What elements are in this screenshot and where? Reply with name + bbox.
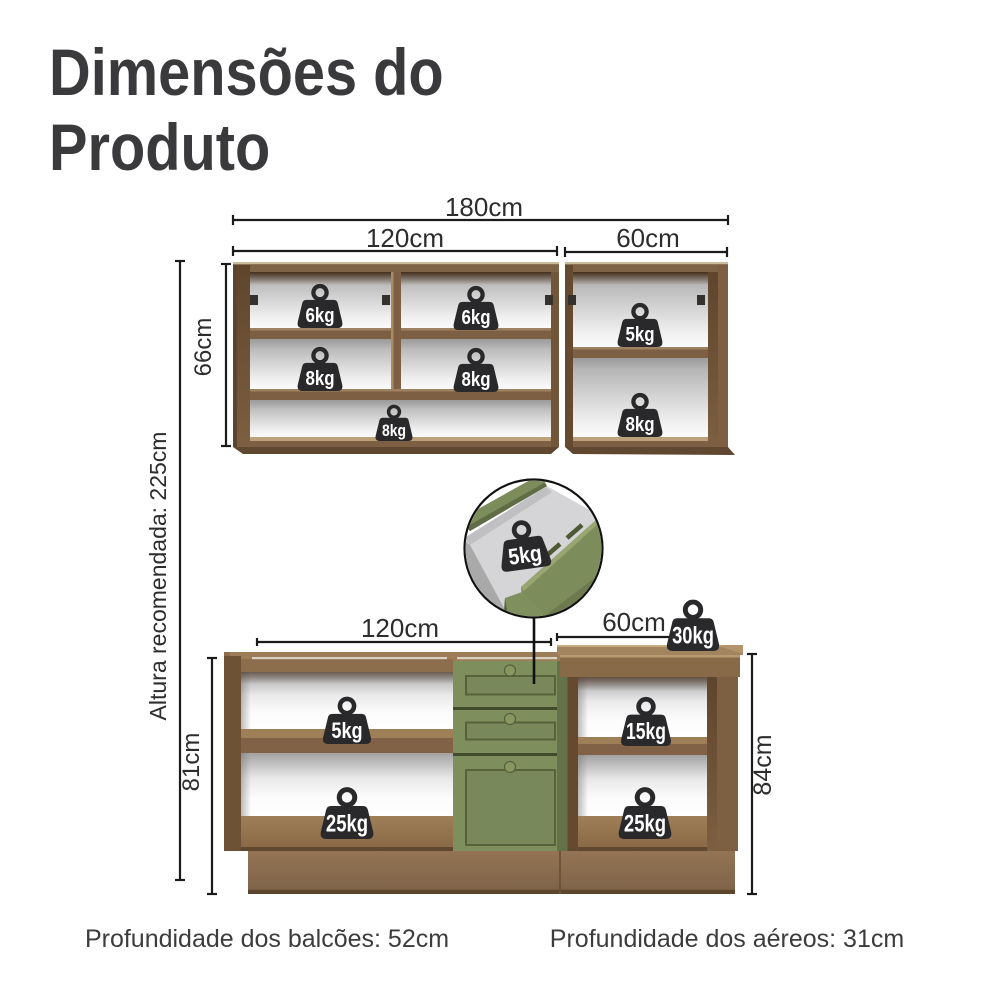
svg-text:60cm: 60cm — [616, 223, 680, 253]
svg-text:25kg: 25kg — [624, 811, 666, 838]
svg-text:60cm: 60cm — [602, 607, 666, 637]
svg-text:Produto: Produto — [49, 111, 270, 184]
svg-text:8kg: 8kg — [305, 368, 334, 390]
svg-text:5kg: 5kg — [507, 539, 544, 569]
svg-text:Profundidade dos aéreos: 31cm: Profundidade dos aéreos: 31cm — [550, 925, 904, 953]
svg-text:30kg: 30kg — [672, 624, 714, 650]
svg-text:6kg: 6kg — [461, 307, 490, 329]
svg-text:5kg: 5kg — [331, 718, 362, 743]
svg-text:5kg: 5kg — [625, 324, 654, 346]
svg-text:66cm: 66cm — [190, 318, 217, 377]
svg-text:120cm: 120cm — [366, 223, 444, 253]
svg-text:Dimensões do: Dimensões do — [49, 36, 444, 109]
svg-text:120cm: 120cm — [361, 613, 439, 643]
svg-text:8kg: 8kg — [625, 414, 654, 436]
svg-text:6kg: 6kg — [305, 305, 334, 327]
svg-text:Profundidade dos balcões: 52cm: Profundidade dos balcões: 52cm — [85, 925, 449, 953]
svg-text:8kg: 8kg — [461, 369, 490, 391]
svg-text:84cm: 84cm — [749, 734, 777, 795]
svg-text:180cm: 180cm — [445, 192, 523, 222]
svg-text:25kg: 25kg — [326, 811, 368, 838]
svg-text:15kg: 15kg — [626, 718, 666, 744]
svg-text:8kg: 8kg — [382, 421, 406, 440]
svg-text:Altura recomendada: 225cm: Altura recomendada: 225cm — [145, 432, 171, 721]
svg-text:81cm: 81cm — [178, 733, 205, 792]
